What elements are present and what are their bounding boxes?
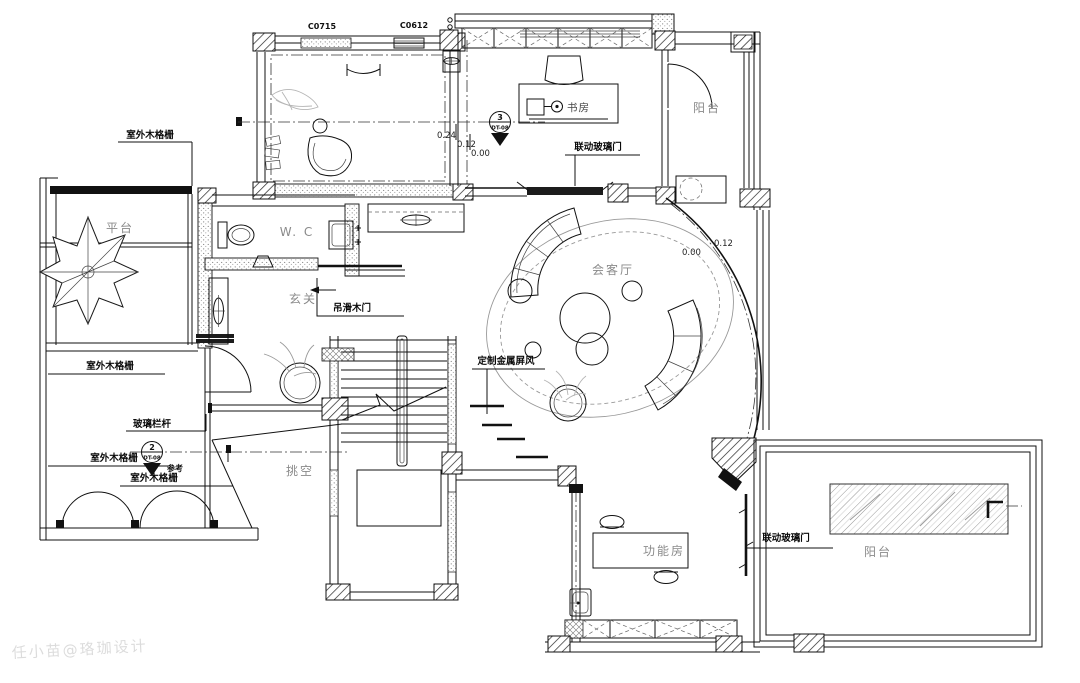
wc-label: W. C: [280, 225, 315, 239]
balcony-top: 阳台: [655, 31, 770, 210]
marker2-code: DT-08: [143, 456, 161, 462]
function-room: 功能房 联动玻璃门: [545, 484, 833, 652]
sofa-left: [511, 208, 581, 297]
glass-rail-label: 玻璃栏杆: [133, 418, 172, 430]
level-0-24: 0.24: [437, 131, 456, 141]
corridor-door: [205, 346, 251, 392]
level-reception-000: 0.00: [682, 248, 701, 258]
foyer-desk-area: 书房: [519, 56, 618, 123]
level-reception-012: 0.12: [714, 239, 733, 249]
balcony-bottom: 阳台: [754, 440, 1042, 652]
grille-label-3: 室外木格栅: [90, 452, 138, 464]
planter: [264, 342, 320, 403]
floor-plan-canvas: 书房 0.24 0.12 0.00 3 DT-08 联动玻璃门 C0715 C0…: [0, 0, 1080, 683]
foyer-label: 玄关: [289, 291, 317, 306]
elevation-marker-3: 3 DT-08: [490, 112, 511, 147]
window-code-c0715: C0715: [308, 22, 337, 31]
watermark: 任小苗@珞珈设计: [11, 637, 148, 662]
window-code-c0612: C0612: [400, 21, 428, 30]
floor-plant: [544, 371, 586, 421]
function-room-label: 功能房: [643, 543, 685, 558]
reference-label: 参考: [166, 463, 183, 473]
stair-treads: [341, 352, 447, 442]
reception-room: 0.00 0.12 会客厅: [461, 188, 769, 448]
grille-label-4: 室外木格栅: [130, 472, 178, 484]
bottom-cabinets: [565, 620, 737, 638]
balcony-bottom-label: 阳台: [864, 544, 892, 559]
floor-plan-drawing: 书房 0.24 0.12 0.00 3 DT-08 联动玻璃门 C0715 C0…: [0, 0, 1080, 683]
study-desk-label: 书房: [567, 101, 590, 114]
study-furniture: [265, 64, 380, 176]
reception-top-wall: [440, 14, 674, 50]
metal-screen-label: 定制金属屏风: [476, 355, 535, 367]
linked-glass-door-bottom-label: 联动玻璃门: [762, 532, 810, 544]
linked-glass-door-top: 联动玻璃门: [465, 141, 672, 202]
reception-label: 会客厅: [592, 262, 634, 277]
staircase: [322, 336, 462, 600]
double-swing-door: [56, 491, 218, 528]
vent-symbol-study: [444, 57, 459, 65]
void-label: 挑空: [286, 464, 314, 478]
elevation-marker-2: 2 DT-08 参考: [142, 442, 184, 477]
plant-sketch-study: [272, 89, 318, 110]
hall-cabinet: [368, 204, 464, 232]
marker2-number: 2: [149, 443, 155, 452]
marker3-code: DT-08: [491, 126, 509, 132]
wc-room: W. C 吊滑木门 玄关: [198, 188, 405, 348]
grille-label-1: 室外木格栅: [126, 129, 174, 141]
grille-label-2: 室外木格栅: [86, 360, 134, 372]
sofa-right: [645, 300, 702, 410]
marker3-number: 3: [497, 113, 503, 122]
platform-label: 平台: [106, 220, 134, 235]
toilet: [218, 222, 254, 248]
linked-glass-door-top-label: 联动玻璃门: [574, 141, 622, 153]
sliding-wood-door-label: 吊滑木门: [333, 302, 371, 314]
balcony-top-label: 阳台: [693, 100, 721, 115]
level-0-00: 0.00: [471, 149, 490, 159]
linked-glass-door-bottom: 联动玻璃门: [739, 494, 833, 576]
coffee-tables: [508, 279, 642, 365]
curved-wall-junction: [712, 438, 756, 491]
void-beam: [456, 466, 576, 486]
